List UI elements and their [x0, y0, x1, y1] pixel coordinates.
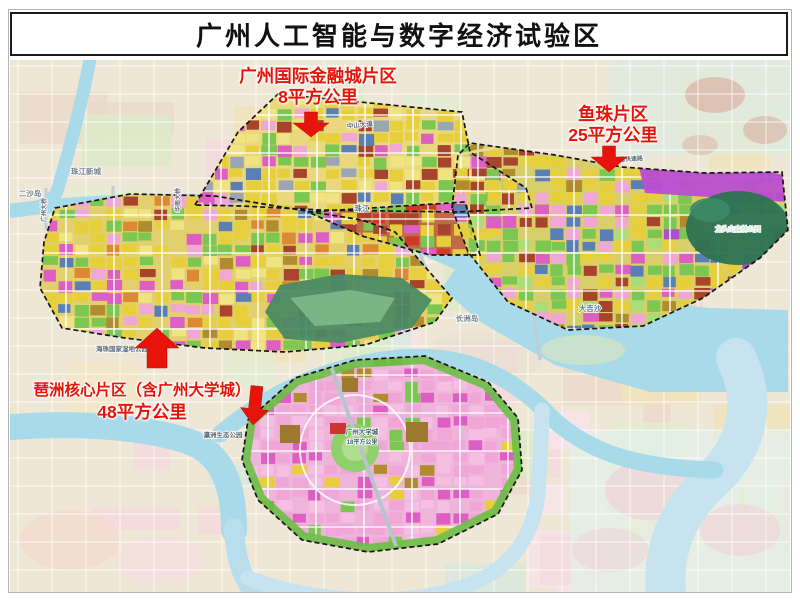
annotation-pazhou-area: 48平方公里	[10, 402, 274, 423]
label-ersha-island: 二沙岛	[19, 188, 42, 198]
label-changzhou-island: 长洲岛	[456, 313, 479, 323]
annotation-financial-city-name: 广州国际金融城片区	[208, 66, 428, 87]
map-container: 珠江新城 二沙岛 广州大桥 华南大桥 中山大道 广园快速路 珠江 龙头山森林公园…	[10, 60, 790, 592]
label-yingzhou-park: 瀛洲生态公园	[204, 430, 244, 439]
label-longtoushan-park: 龙头山森林公园	[714, 224, 761, 233]
annotation-pazhou: 琶洲核心片区（含广州大学城） 48平方公里	[10, 382, 274, 423]
label-pearl-river: 珠江	[355, 203, 370, 213]
label-university-town-area: 18平方公里	[347, 438, 378, 446]
annotation-yuzhu-name: 鱼珠片区	[523, 104, 703, 125]
annotation-financial-city-area: 8平方公里	[208, 87, 428, 108]
title-bar: 广州人工智能与数字经济试验区	[10, 12, 788, 56]
label-zhujiang-new-town: 珠江新城	[71, 166, 101, 176]
annotation-yuzhu-area: 25平方公里	[523, 125, 703, 146]
label-university-town: 广州大学城	[346, 427, 379, 436]
annotation-financial-city: 广州国际金融城片区 8平方公里	[208, 66, 428, 107]
page-title: 广州人工智能与数字经济试验区	[196, 16, 602, 53]
annotation-yuzhu: 鱼珠片区 25平方公里	[523, 104, 703, 145]
annotation-pazhou-name: 琶洲核心片区（含广州大学城）	[10, 382, 274, 400]
dajisha-island	[541, 335, 625, 365]
label-guangzhou-bridge: 广州大桥	[40, 197, 48, 222]
label-dajisha: 大吉沙	[579, 303, 602, 313]
label-huanan-bridge: 华南大桥	[174, 187, 182, 212]
